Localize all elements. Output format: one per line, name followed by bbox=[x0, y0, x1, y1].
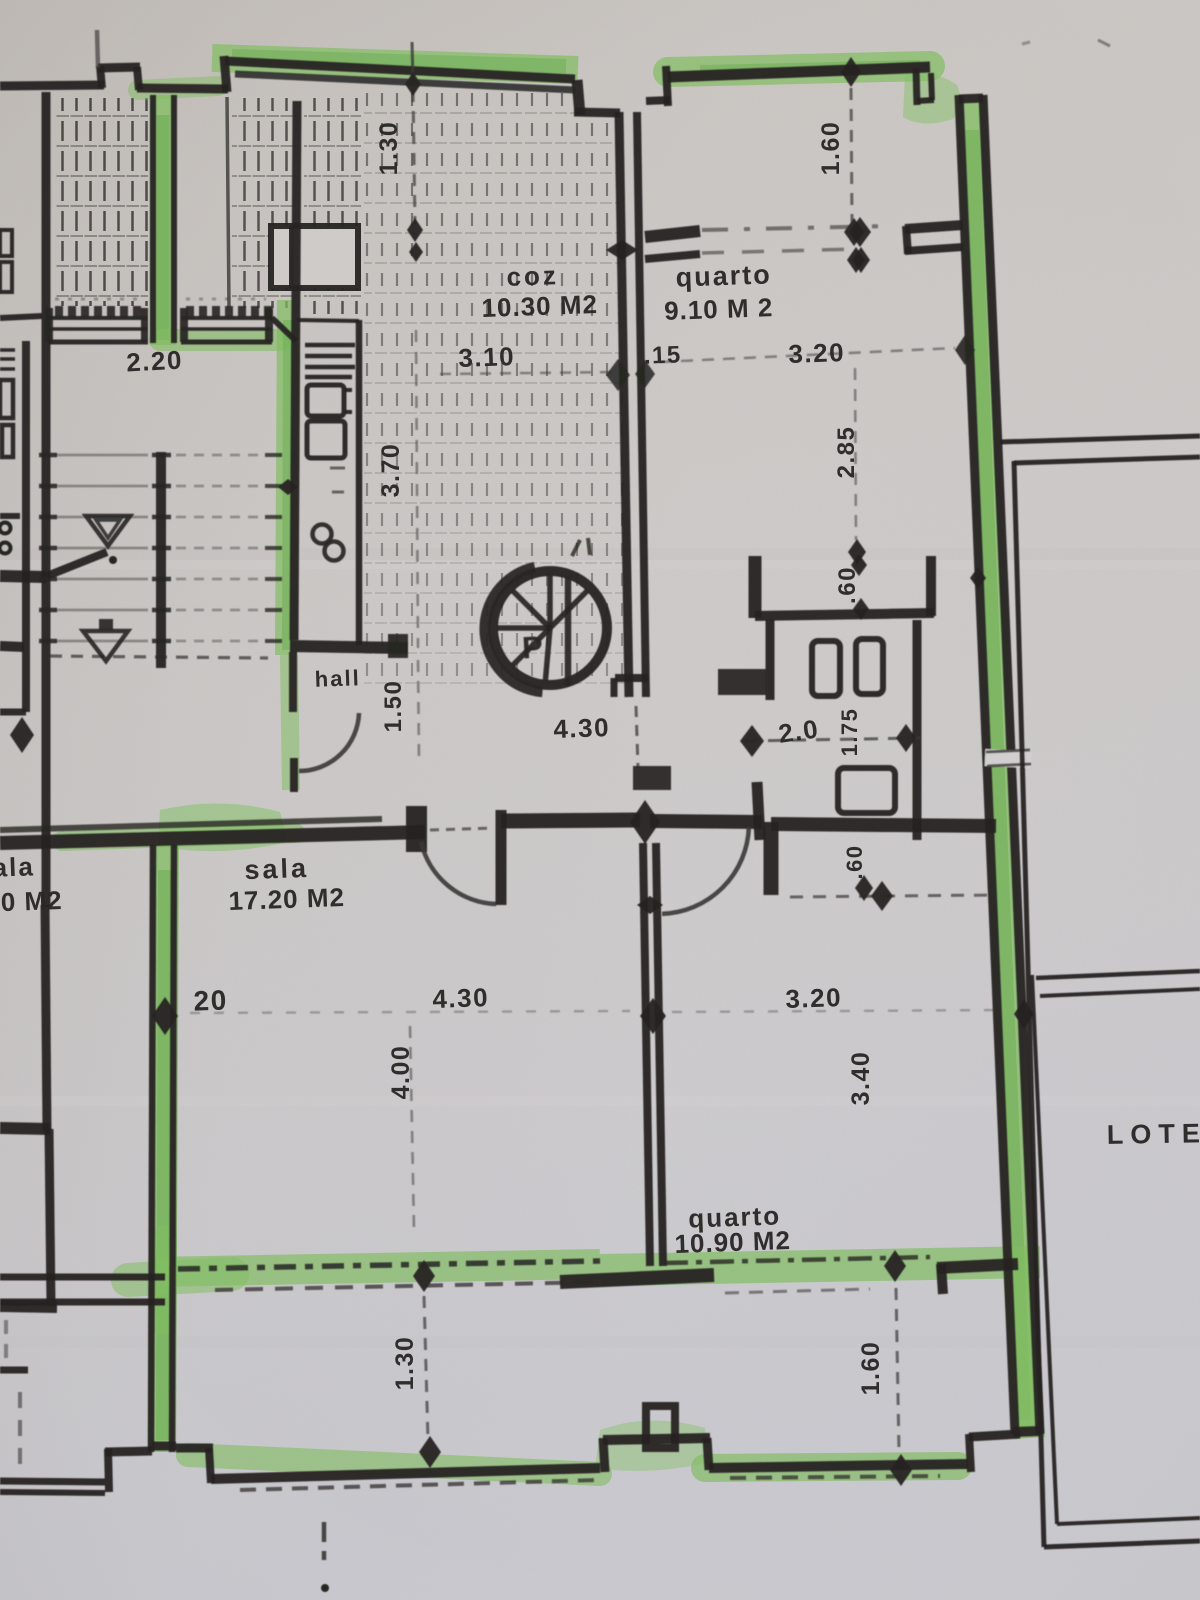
svg-text:1.30: 1.30 bbox=[375, 121, 403, 176]
svg-text:4.30: 4.30 bbox=[553, 712, 611, 744]
svg-text:3.20: 3.20 bbox=[785, 982, 843, 1014]
svg-text:hall: hall bbox=[314, 665, 361, 692]
svg-text:2.85: 2.85 bbox=[833, 426, 860, 479]
svg-text:20: 20 bbox=[193, 984, 228, 1016]
svg-text:P: P bbox=[521, 629, 543, 665]
svg-text:17.20 M2: 17.20 M2 bbox=[228, 882, 345, 916]
svg-text:1.75: 1.75 bbox=[837, 708, 862, 757]
svg-text:.15: .15 bbox=[643, 341, 682, 369]
svg-text:ala: ala bbox=[0, 851, 35, 882]
svg-text:1.30: 1.30 bbox=[391, 1336, 419, 1391]
svg-text:sala: sala bbox=[244, 853, 310, 885]
svg-text:coz: coz bbox=[506, 260, 559, 292]
svg-text:2.20: 2.20 bbox=[125, 345, 183, 378]
svg-text:.60: .60 bbox=[834, 566, 861, 604]
svg-text:1.60: 1.60 bbox=[857, 1341, 885, 1396]
svg-text:10.90 M2: 10.90 M2 bbox=[674, 1225, 791, 1259]
svg-text:3.10: 3.10 bbox=[458, 341, 516, 373]
svg-text:1.60: 1.60 bbox=[817, 121, 845, 176]
svg-text:4.00: 4.00 bbox=[387, 1045, 415, 1100]
svg-text:3.20: 3.20 bbox=[788, 337, 846, 369]
svg-text:2.0: 2.0 bbox=[777, 713, 821, 748]
svg-text:3.40: 3.40 bbox=[847, 1051, 875, 1106]
svg-text:10.30 M2: 10.30 M2 bbox=[481, 289, 598, 323]
svg-text:.60: .60 bbox=[842, 844, 867, 879]
svg-text:3.70: 3.70 bbox=[377, 443, 405, 498]
svg-text:LOTE: LOTE bbox=[1107, 1118, 1200, 1150]
svg-text:9.10 M 2: 9.10 M 2 bbox=[664, 292, 774, 326]
svg-text:4.30: 4.30 bbox=[432, 982, 490, 1014]
svg-text:1.50: 1.50 bbox=[380, 680, 407, 733]
svg-text:0 M2: 0 M2 bbox=[0, 885, 63, 917]
svg-text:quarto: quarto bbox=[675, 259, 772, 292]
